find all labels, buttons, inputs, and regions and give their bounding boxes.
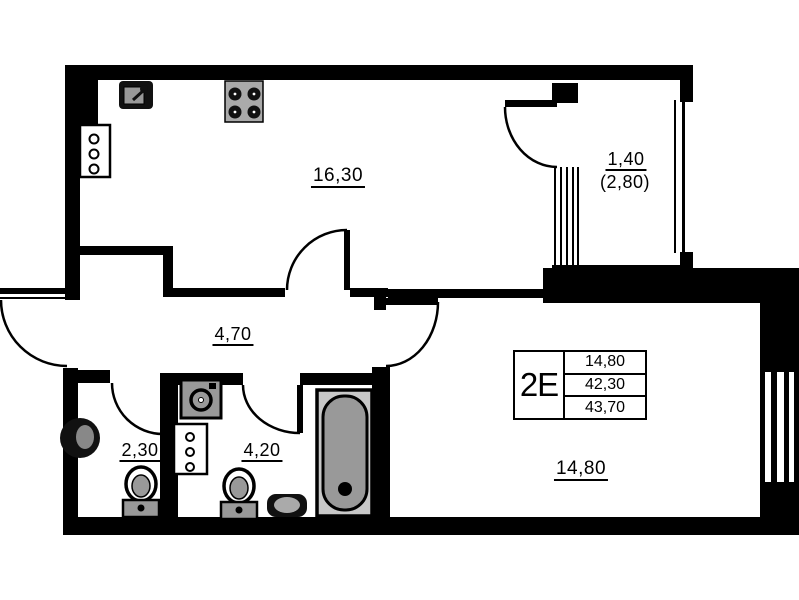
shaft-cabinet-icon xyxy=(174,424,207,474)
wc-door xyxy=(112,383,166,434)
entrance-door-arc xyxy=(1,300,67,366)
balcony-area-label: 1,40 xyxy=(605,150,646,171)
floor-plan: 16,30 4,70 1,40 (2,80) 2,30 4,20 14,80 2… xyxy=(0,0,799,600)
unit-areas: 14,80 42,30 43,70 xyxy=(565,352,645,418)
balcony-door-arc xyxy=(505,107,557,167)
toilet-icon xyxy=(123,467,159,517)
wc-sink-icon xyxy=(60,418,100,458)
bedroom-window xyxy=(760,372,799,482)
bathtub-icon xyxy=(317,390,372,516)
balcony-side-window xyxy=(674,100,685,253)
unit-code: 2E xyxy=(515,352,565,418)
electrical-panel-icon xyxy=(80,125,110,177)
wall-segment xyxy=(680,80,693,102)
wc-door-arc xyxy=(112,383,163,434)
wall-segment xyxy=(0,288,70,294)
wall-segment xyxy=(388,289,543,298)
kitchen-door xyxy=(287,230,350,290)
bathroom-area-label: 4,20 xyxy=(241,441,282,462)
entrance-door xyxy=(1,300,67,366)
unit-info-box: 2E 14,80 42,30 43,70 xyxy=(513,350,647,420)
wall-segment xyxy=(372,367,390,517)
wall-segment xyxy=(170,288,285,297)
kitchen-door-leaf xyxy=(344,230,350,290)
bedroom-area-label: 14,80 xyxy=(554,459,608,481)
bedroom-door-arc xyxy=(386,302,438,366)
wall-segment xyxy=(63,517,799,535)
bathroom-door-arc xyxy=(243,385,300,433)
wall-segment xyxy=(80,67,98,125)
unit-total-area: 43,70 xyxy=(565,397,645,418)
wall-segment xyxy=(552,265,693,280)
kitchen-door-arc xyxy=(287,230,347,290)
wall-segment xyxy=(760,268,799,372)
wall-segment xyxy=(680,252,693,268)
wall-segment xyxy=(65,65,693,80)
wc-area-label: 2,30 xyxy=(119,441,160,462)
stove-icon xyxy=(225,81,263,122)
wall-segment xyxy=(77,246,170,255)
kitchen-sink-icon xyxy=(119,81,153,109)
bathroom-door-leaf xyxy=(297,385,303,433)
balcony-partition-window xyxy=(554,167,579,266)
bedroom-door-leaf xyxy=(386,298,438,305)
unit-living-area: 14,80 xyxy=(565,352,645,375)
bathroom-sink-icon xyxy=(267,494,307,517)
unit-area: 42,30 xyxy=(565,375,645,398)
wc-door-leaf xyxy=(160,383,166,433)
bathroom-door xyxy=(243,385,303,433)
balcony-total-area-label: (2,80) xyxy=(598,173,652,192)
hallway-area-label: 4,70 xyxy=(212,325,253,346)
kitchen-living-area-label: 16,30 xyxy=(311,166,365,188)
wall-segment xyxy=(374,295,386,310)
wall-segment xyxy=(0,297,70,299)
plan-drawing xyxy=(0,0,799,600)
wall-segment xyxy=(63,370,110,383)
washing-machine-icon xyxy=(181,380,221,418)
toilet-icon xyxy=(221,469,257,519)
balcony-door xyxy=(505,100,557,167)
balcony-door-leaf xyxy=(505,100,557,107)
wall-segment xyxy=(65,65,80,300)
bedroom-door xyxy=(386,298,438,366)
